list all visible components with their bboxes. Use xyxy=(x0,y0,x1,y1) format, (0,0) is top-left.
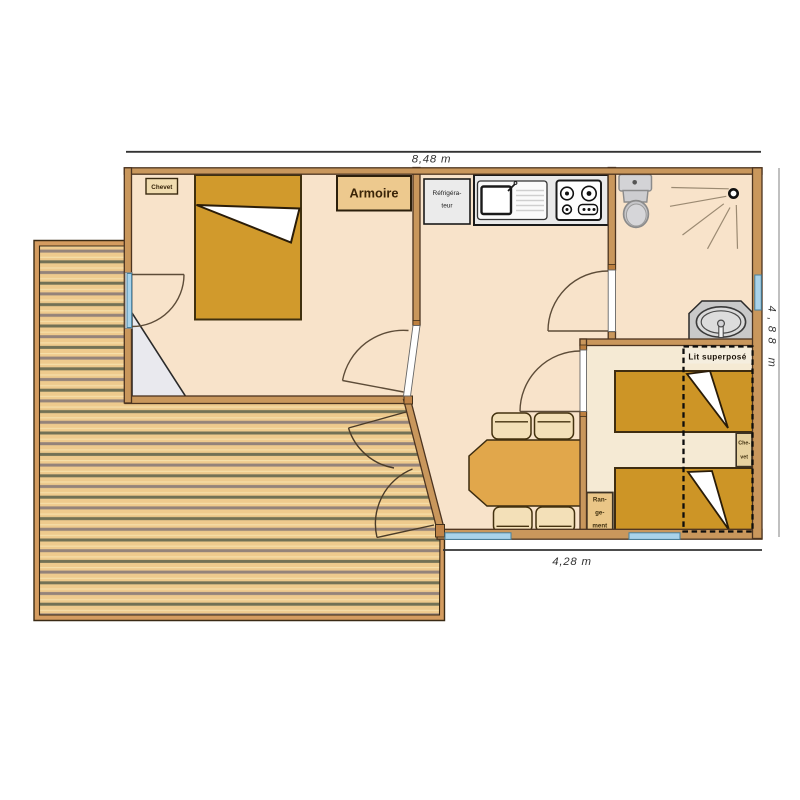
svg-text:ment: ment xyxy=(592,523,607,530)
svg-text:ge-: ge- xyxy=(595,510,604,517)
svg-text:Che-: Che- xyxy=(738,441,750,447)
svg-text:Réfrigéra-: Réfrigéra- xyxy=(433,190,462,197)
svg-text:Chevet: Chevet xyxy=(151,184,173,191)
svg-text:teur: teur xyxy=(441,203,453,210)
svg-text:vet: vet xyxy=(740,455,748,461)
svg-text:4,88 m: 4,88 m xyxy=(766,306,778,373)
svg-text:Lit superposé: Lit superposé xyxy=(688,353,746,362)
svg-text:8,48 m: 8,48 m xyxy=(412,154,452,166)
svg-text:4,28 m: 4,28 m xyxy=(552,556,592,568)
svg-text:Ran-: Ran- xyxy=(593,497,607,504)
svg-text:Armoire: Armoire xyxy=(349,186,398,201)
